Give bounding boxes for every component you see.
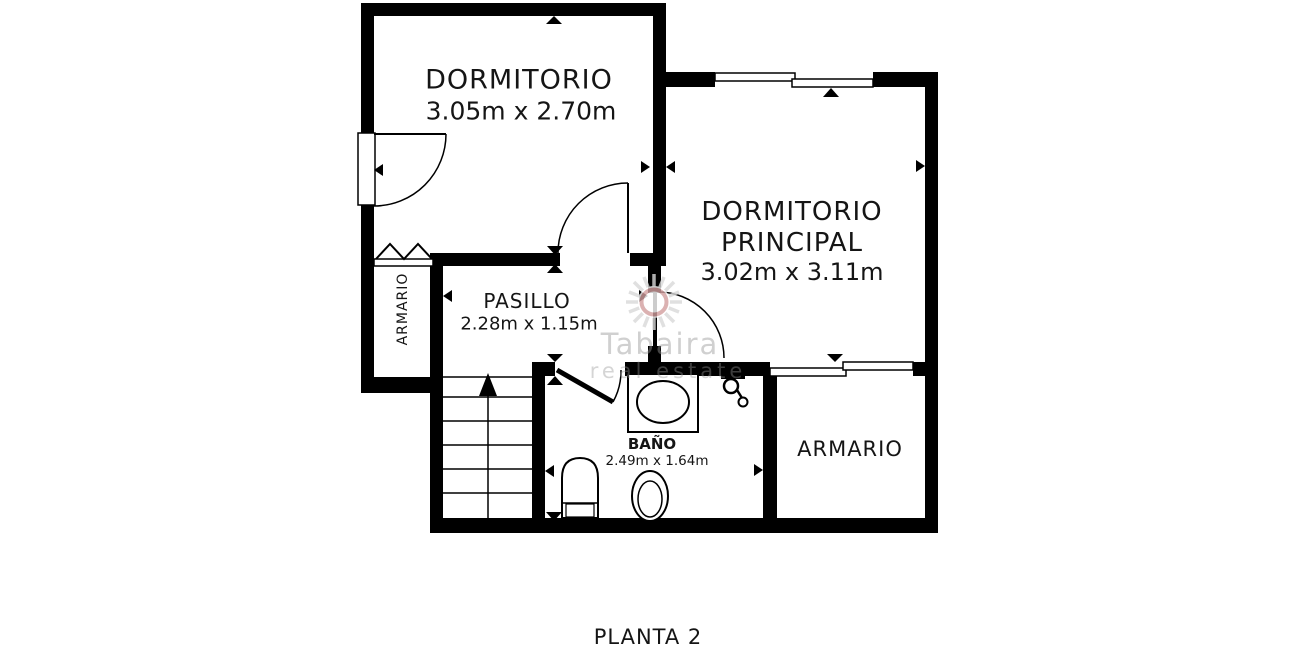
room-dimensions-bano: 2.49m x 1.64m [606, 453, 709, 469]
room-dimensions-dormitorio-principal: 3.02m x 3.11m [700, 258, 883, 286]
sliding-window-principal [715, 73, 873, 87]
room-label-dormitorio-principal-line2: PRINCIPAL [721, 228, 863, 258]
stairs [443, 377, 532, 518]
window-left [358, 133, 375, 205]
room-label-dormitorio-principal-line1: DORMITORIO [701, 197, 882, 227]
floor-plan-drawing [0, 0, 1300, 650]
room-dimensions-pasillo: 2.28m x 1.15m [460, 314, 597, 335]
room-label-pasillo: PASILLO [483, 289, 570, 313]
toilet-icon [632, 471, 668, 521]
door-bedroom-pasillo [558, 183, 628, 253]
room-label-dormitorio: DORMITORIO [425, 65, 613, 96]
watermark-text-line1: Tabaira [601, 327, 720, 361]
watermark-text-line2: real estate [590, 359, 747, 383]
room-label-armario-right: ARMARIO [797, 437, 903, 461]
water-heater-icon [562, 458, 598, 518]
sliding-door-armario [770, 362, 913, 376]
page-title: PLANTA 2 [594, 625, 703, 649]
room-dimensions-dormitorio: 3.05m x 2.70m [426, 97, 617, 126]
door-bedroom-left [374, 134, 446, 206]
bifold-door-armario [374, 244, 433, 266]
floor-plan: Tabaira real estate DORMITORIO 3.05m x 2… [0, 0, 1300, 650]
watermark-logo-icon [626, 274, 682, 330]
room-label-armario-left: ARMARIO [395, 273, 411, 346]
room-label-bano: BAÑO [628, 435, 676, 453]
